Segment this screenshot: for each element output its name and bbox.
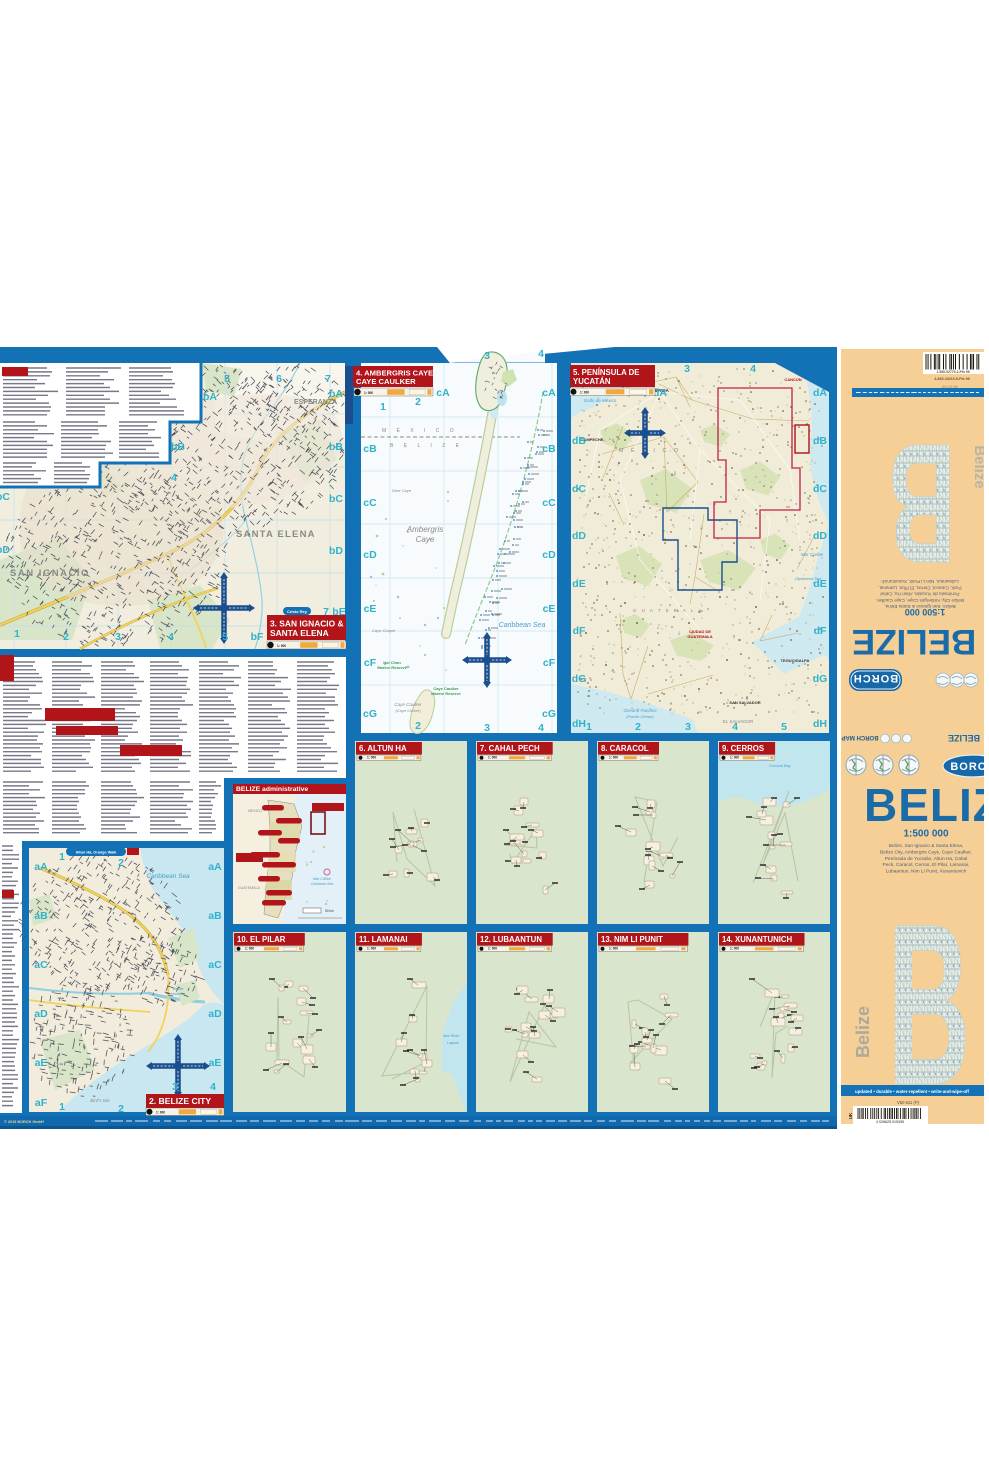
- svg-text:Caribbean Sea: Caribbean Sea: [146, 873, 190, 880]
- svg-text:dD: dD: [572, 530, 586, 542]
- svg-text:TEGUCIGALPA: TEGUCIGALPA: [781, 658, 810, 663]
- svg-text:1: 000: 1: 000: [364, 391, 373, 395]
- svg-text:1: 000: 1: 000: [609, 756, 618, 760]
- svg-text:7. CAHAL PECH: 7. CAHAL PECH: [480, 744, 540, 753]
- svg-text:bA: bA: [329, 388, 343, 400]
- svg-text:SANTA ELENA: SANTA ELENA: [236, 529, 316, 540]
- svg-text:M É X I C O: M É X I C O: [382, 427, 458, 434]
- svg-text:1: 1: [59, 1101, 65, 1113]
- svg-text:cE: cE: [364, 603, 377, 615]
- svg-text:1:500 000: 1:500 000: [905, 607, 946, 617]
- svg-text:(Caye Corker): (Caye Corker): [395, 708, 421, 713]
- svg-text:cG: cG: [363, 708, 377, 720]
- svg-text:Belize City, Ambergris Caye, C: Belize City, Ambergris Caye, Caye Caulke…: [880, 849, 972, 855]
- svg-text:8. CARACOL: 8. CARACOL: [601, 744, 649, 753]
- svg-text:cE: cE: [543, 603, 556, 615]
- svg-text:(Pacific Ocean): (Pacific Ocean): [626, 714, 654, 719]
- svg-text:aD: aD: [34, 1008, 48, 1020]
- svg-text:cF: cF: [364, 657, 377, 669]
- svg-text:ESPERANZA: ESPERANZA: [294, 399, 337, 406]
- svg-text:cC: cC: [363, 497, 377, 509]
- svg-text:dH: dH: [572, 718, 586, 730]
- svg-text:Mar Caribe: Mar Caribe: [801, 552, 824, 557]
- svg-text:Lagoon: Lagoon: [447, 1041, 459, 1045]
- svg-text:SANTA ELENA: SANTA ELENA: [270, 628, 329, 638]
- svg-text:G U A T E M A L A: G U A T E M A L A: [633, 608, 703, 613]
- svg-text:Marine Reserve: Marine Reserve: [377, 665, 407, 670]
- svg-text:bF: bF: [251, 631, 264, 643]
- svg-text:dE: dE: [572, 578, 585, 590]
- svg-text:Harbour: Harbour: [171, 991, 186, 996]
- svg-text:SAN IGNACIO: SAN IGNACIO: [10, 568, 90, 579]
- svg-text:cC: cC: [542, 497, 556, 509]
- svg-text:Marine Reserve: Marine Reserve: [431, 691, 461, 696]
- svg-text:aE: aE: [35, 1057, 48, 1069]
- svg-text:dF: dF: [814, 625, 827, 637]
- svg-text:cB: cB: [542, 443, 556, 455]
- svg-text:4: 4: [210, 1081, 216, 1093]
- svg-text:Caye Caulker: Caye Caulker: [394, 702, 422, 707]
- svg-text:1:500 000: 1:500 000: [903, 829, 948, 840]
- svg-text:Belize, San Ignacio & Santa El: Belize, San Ignacio & Santa Elena,: [889, 843, 963, 849]
- svg-text:aF: aF: [35, 1097, 48, 1109]
- svg-text:4: 4: [171, 472, 177, 484]
- svg-text:1: 1: [14, 628, 20, 640]
- svg-text:Deer Caye: Deer Caye: [392, 488, 412, 493]
- svg-text:5. PENÍNSULA DE: 5. PENÍNSULA DE: [573, 368, 639, 377]
- svg-text:dE: dE: [813, 578, 826, 590]
- svg-text:1: 000: 1: 000: [367, 947, 376, 951]
- svg-text:3: 3: [484, 722, 490, 734]
- svg-text:dB: dB: [813, 435, 827, 447]
- svg-text:Belize City, Ambergris Caye, C: Belize City, Ambergris Caye, Caye Caulke…: [876, 598, 964, 603]
- svg-text:Altun Ha, Orange Walk: Altun Ha, Orange Walk: [76, 851, 118, 855]
- svg-text:New River: New River: [443, 1034, 460, 1038]
- svg-text:CANCÚN: CANCÚN: [784, 377, 801, 382]
- svg-text:1: 1: [380, 401, 386, 413]
- svg-text:3: 3: [484, 350, 490, 362]
- svg-text:bD: bD: [329, 545, 343, 557]
- svg-text:cD: cD: [363, 549, 377, 561]
- svg-text:1: 1: [586, 721, 592, 733]
- svg-text:Península de Yucatán, Altun Ha: Península de Yucatán, Altun Ha, Cahal: [885, 856, 968, 862]
- svg-text:3: 3: [115, 631, 121, 643]
- svg-text:1: 000: 1: 000: [730, 947, 739, 951]
- svg-text:Belize: Belize: [853, 1006, 873, 1058]
- svg-text:bB: bB: [171, 441, 185, 453]
- svg-text:aA: aA: [34, 861, 48, 873]
- svg-text:BORCH MAP: BORCH MAP: [842, 734, 879, 740]
- svg-text:V50 511 (P): V50 511 (P): [897, 1100, 920, 1105]
- svg-text:BELIZE: BELIZE: [948, 733, 980, 743]
- svg-text:Oceano Pacífico: Oceano Pacífico: [623, 708, 657, 713]
- svg-text:dH: dH: [813, 718, 827, 730]
- svg-text:3: 3: [685, 721, 691, 733]
- svg-text:4 026625 015395: 4 026625 015395: [876, 1120, 904, 1124]
- svg-text:cD: cD: [542, 549, 556, 561]
- svg-text:5: 5: [224, 373, 230, 385]
- svg-text:2: 2: [118, 1103, 124, 1115]
- svg-text:4: 4: [750, 363, 756, 375]
- svg-text:4: 4: [168, 631, 174, 643]
- svg-text:aC: aC: [208, 959, 222, 971]
- svg-text:1: 000: 1: 000: [488, 756, 497, 760]
- svg-text:3: 3: [172, 1081, 178, 1093]
- svg-text:4: 4: [538, 348, 544, 360]
- svg-text:bC: bC: [329, 493, 343, 505]
- svg-text:dC: dC: [813, 483, 827, 495]
- svg-text:GUATEMALA: GUATEMALA: [238, 886, 261, 890]
- svg-text:Peck, Caracol, Cerros, El Pila: Peck, Caracol, Cerros, El Pilar, Lamanai…: [878, 585, 961, 590]
- svg-text:BELIZE: BELIZE: [864, 779, 989, 831]
- svg-text:Caribbean Sea: Caribbean Sea: [499, 622, 546, 629]
- svg-text:bB: bB: [329, 441, 343, 453]
- svg-text:1-566-52779-2-Pts 98: 1-566-52779-2-Pts 98: [936, 370, 969, 374]
- svg-text:Ambergris: Ambergris: [406, 525, 443, 534]
- svg-text:cA: cA: [542, 387, 556, 399]
- svg-text:SAN SALVADOR: SAN SALVADOR: [729, 700, 761, 705]
- svg-text:dG: dG: [813, 673, 828, 685]
- svg-text:11. LAMANAI: 11. LAMANAI: [359, 935, 408, 944]
- svg-text:bA: bA: [203, 391, 217, 403]
- svg-text:9. CERROS: 9. CERROS: [722, 744, 764, 753]
- svg-text:cF: cF: [543, 657, 556, 669]
- svg-text:aB: aB: [208, 910, 222, 922]
- svg-text:2: 2: [415, 396, 421, 408]
- svg-text:2: 2: [118, 857, 124, 869]
- svg-text:UK: UK: [848, 1112, 853, 1119]
- svg-text:1: 000: 1: 000: [488, 947, 497, 951]
- svg-text:1: 000: 1: 000: [580, 391, 589, 395]
- svg-text:10. EL PILAR: 10. EL PILAR: [237, 935, 286, 944]
- svg-text:Caye: Caye: [416, 535, 435, 544]
- svg-text:Caye Chapel: Caye Chapel: [372, 628, 395, 633]
- svg-text:2: 2: [63, 631, 69, 643]
- svg-text:2: 2: [635, 721, 641, 733]
- svg-text:1: 000: 1: 000: [156, 1111, 165, 1115]
- svg-text:5: 5: [222, 631, 228, 643]
- svg-text:BELIZE: BELIZE: [852, 622, 976, 661]
- svg-text:aA: aA: [208, 861, 222, 873]
- svg-text:Lubaantun, Nim Li Punit, Xunan: Lubaantun, Nim Li Punit, Xunantunich: [881, 579, 959, 584]
- svg-text:Peck, Caracol, Cerros, El Pila: Peck, Caracol, Cerros, El Pilar, Lamanai…: [883, 862, 970, 868]
- svg-text:4-665-43216-5-Pts 98: 4-665-43216-5-Pts 98: [934, 377, 969, 381]
- svg-text:50 km: 50 km: [325, 909, 334, 913]
- svg-text:Mar Caribe: Mar Caribe: [313, 877, 331, 881]
- svg-text:aB: aB: [34, 910, 48, 922]
- svg-text:3. SAN IGNACIO &: 3. SAN IGNACIO &: [270, 618, 344, 628]
- svg-text:6. ALTUN HA: 6. ALTUN HA: [359, 744, 407, 753]
- svg-text:6: 6: [276, 373, 282, 385]
- svg-text:dF: dF: [573, 625, 586, 637]
- svg-text:4. AMBERGRIS CAYE: 4. AMBERGRIS CAYE: [356, 368, 433, 377]
- svg-text:3: 3: [684, 363, 690, 375]
- svg-text:Bird’s Isle: Bird’s Isle: [90, 1098, 110, 1103]
- svg-text:1: 000: 1: 000: [277, 644, 286, 648]
- svg-text:cG: cG: [542, 708, 556, 720]
- svg-text:GUATEMALA: GUATEMALA: [687, 634, 712, 639]
- svg-text:B E L I Z E: B E L I Z E: [390, 443, 464, 449]
- svg-text:CAYE CAULKER: CAYE CAULKER: [356, 377, 416, 386]
- svg-text:1: 000: 1: 000: [609, 947, 618, 951]
- svg-text:updated • durable • water-repe: updated • durable • water-repellent • wr…: [855, 1089, 969, 1094]
- svg-text:dC: dC: [572, 483, 586, 495]
- svg-text:aE: aE: [209, 1057, 222, 1069]
- svg-text:bD: bD: [0, 544, 10, 556]
- svg-text:Corozal Bay: Corozal Bay: [769, 763, 792, 768]
- svg-text:dD: dD: [813, 530, 827, 542]
- svg-text:© 2019 BORCH GmbH: © 2019 BORCH GmbH: [4, 1120, 44, 1124]
- svg-text:5: 5: [781, 721, 787, 733]
- svg-text:BELIZE administrative: BELIZE administrative: [236, 786, 308, 793]
- svg-text:bC: bC: [0, 491, 10, 503]
- svg-text:cA: cA: [436, 387, 450, 399]
- svg-text:4: 4: [538, 722, 544, 734]
- svg-text:7: 7: [325, 373, 331, 385]
- svg-text:2: 2: [415, 720, 421, 732]
- svg-text:Caribbean Sea: Caribbean Sea: [311, 882, 334, 886]
- svg-text:14. XUNANTUNICH: 14. XUNANTUNICH: [722, 935, 793, 944]
- svg-text:aD: aD: [208, 1008, 222, 1020]
- svg-text:1: 000: 1: 000: [367, 756, 376, 760]
- svg-text:aC: aC: [34, 959, 48, 971]
- svg-text:13. NIM LI PUNIT: 13. NIM LI PUNIT: [601, 935, 663, 944]
- svg-text:BORCH: BORCH: [950, 761, 989, 773]
- svg-text:YUCATÁN: YUCATÁN: [573, 377, 611, 386]
- svg-text:B: B: [888, 408, 956, 598]
- svg-text:dG: dG: [572, 673, 587, 685]
- svg-text:EL SALVADOR: EL SALVADOR: [723, 719, 754, 724]
- svg-text:1: 1: [59, 851, 65, 863]
- svg-text:M É X I C O: M É X I C O: [619, 447, 681, 454]
- svg-text:dB: dB: [572, 435, 586, 447]
- svg-text:BORCH: BORCH: [853, 672, 898, 684]
- svg-text:1: 000: 1: 000: [245, 947, 254, 951]
- svg-text:Cristo Rey: Cristo Rey: [287, 609, 308, 614]
- svg-text:MEXICO: MEXICO: [248, 809, 262, 813]
- svg-text:4: 4: [732, 721, 738, 733]
- svg-text:Golfo de México: Golfo de México: [584, 398, 617, 403]
- svg-text:2. BELIZE CITY: 2. BELIZE CITY: [149, 1096, 211, 1106]
- svg-text:Península de Yucatán, Altun Ha: Península de Yucatán, Altun Ha, Cahal: [880, 592, 959, 597]
- svg-text:12. LUBAANTUN: 12. LUBAANTUN: [480, 935, 542, 944]
- svg-text:Lubaantun, Nim Li Punit, Xunan: Lubaantun, Nim Li Punit, Xunantunich: [886, 869, 967, 875]
- svg-text:1: 000: 1: 000: [730, 756, 739, 760]
- svg-text:cB: cB: [363, 443, 377, 455]
